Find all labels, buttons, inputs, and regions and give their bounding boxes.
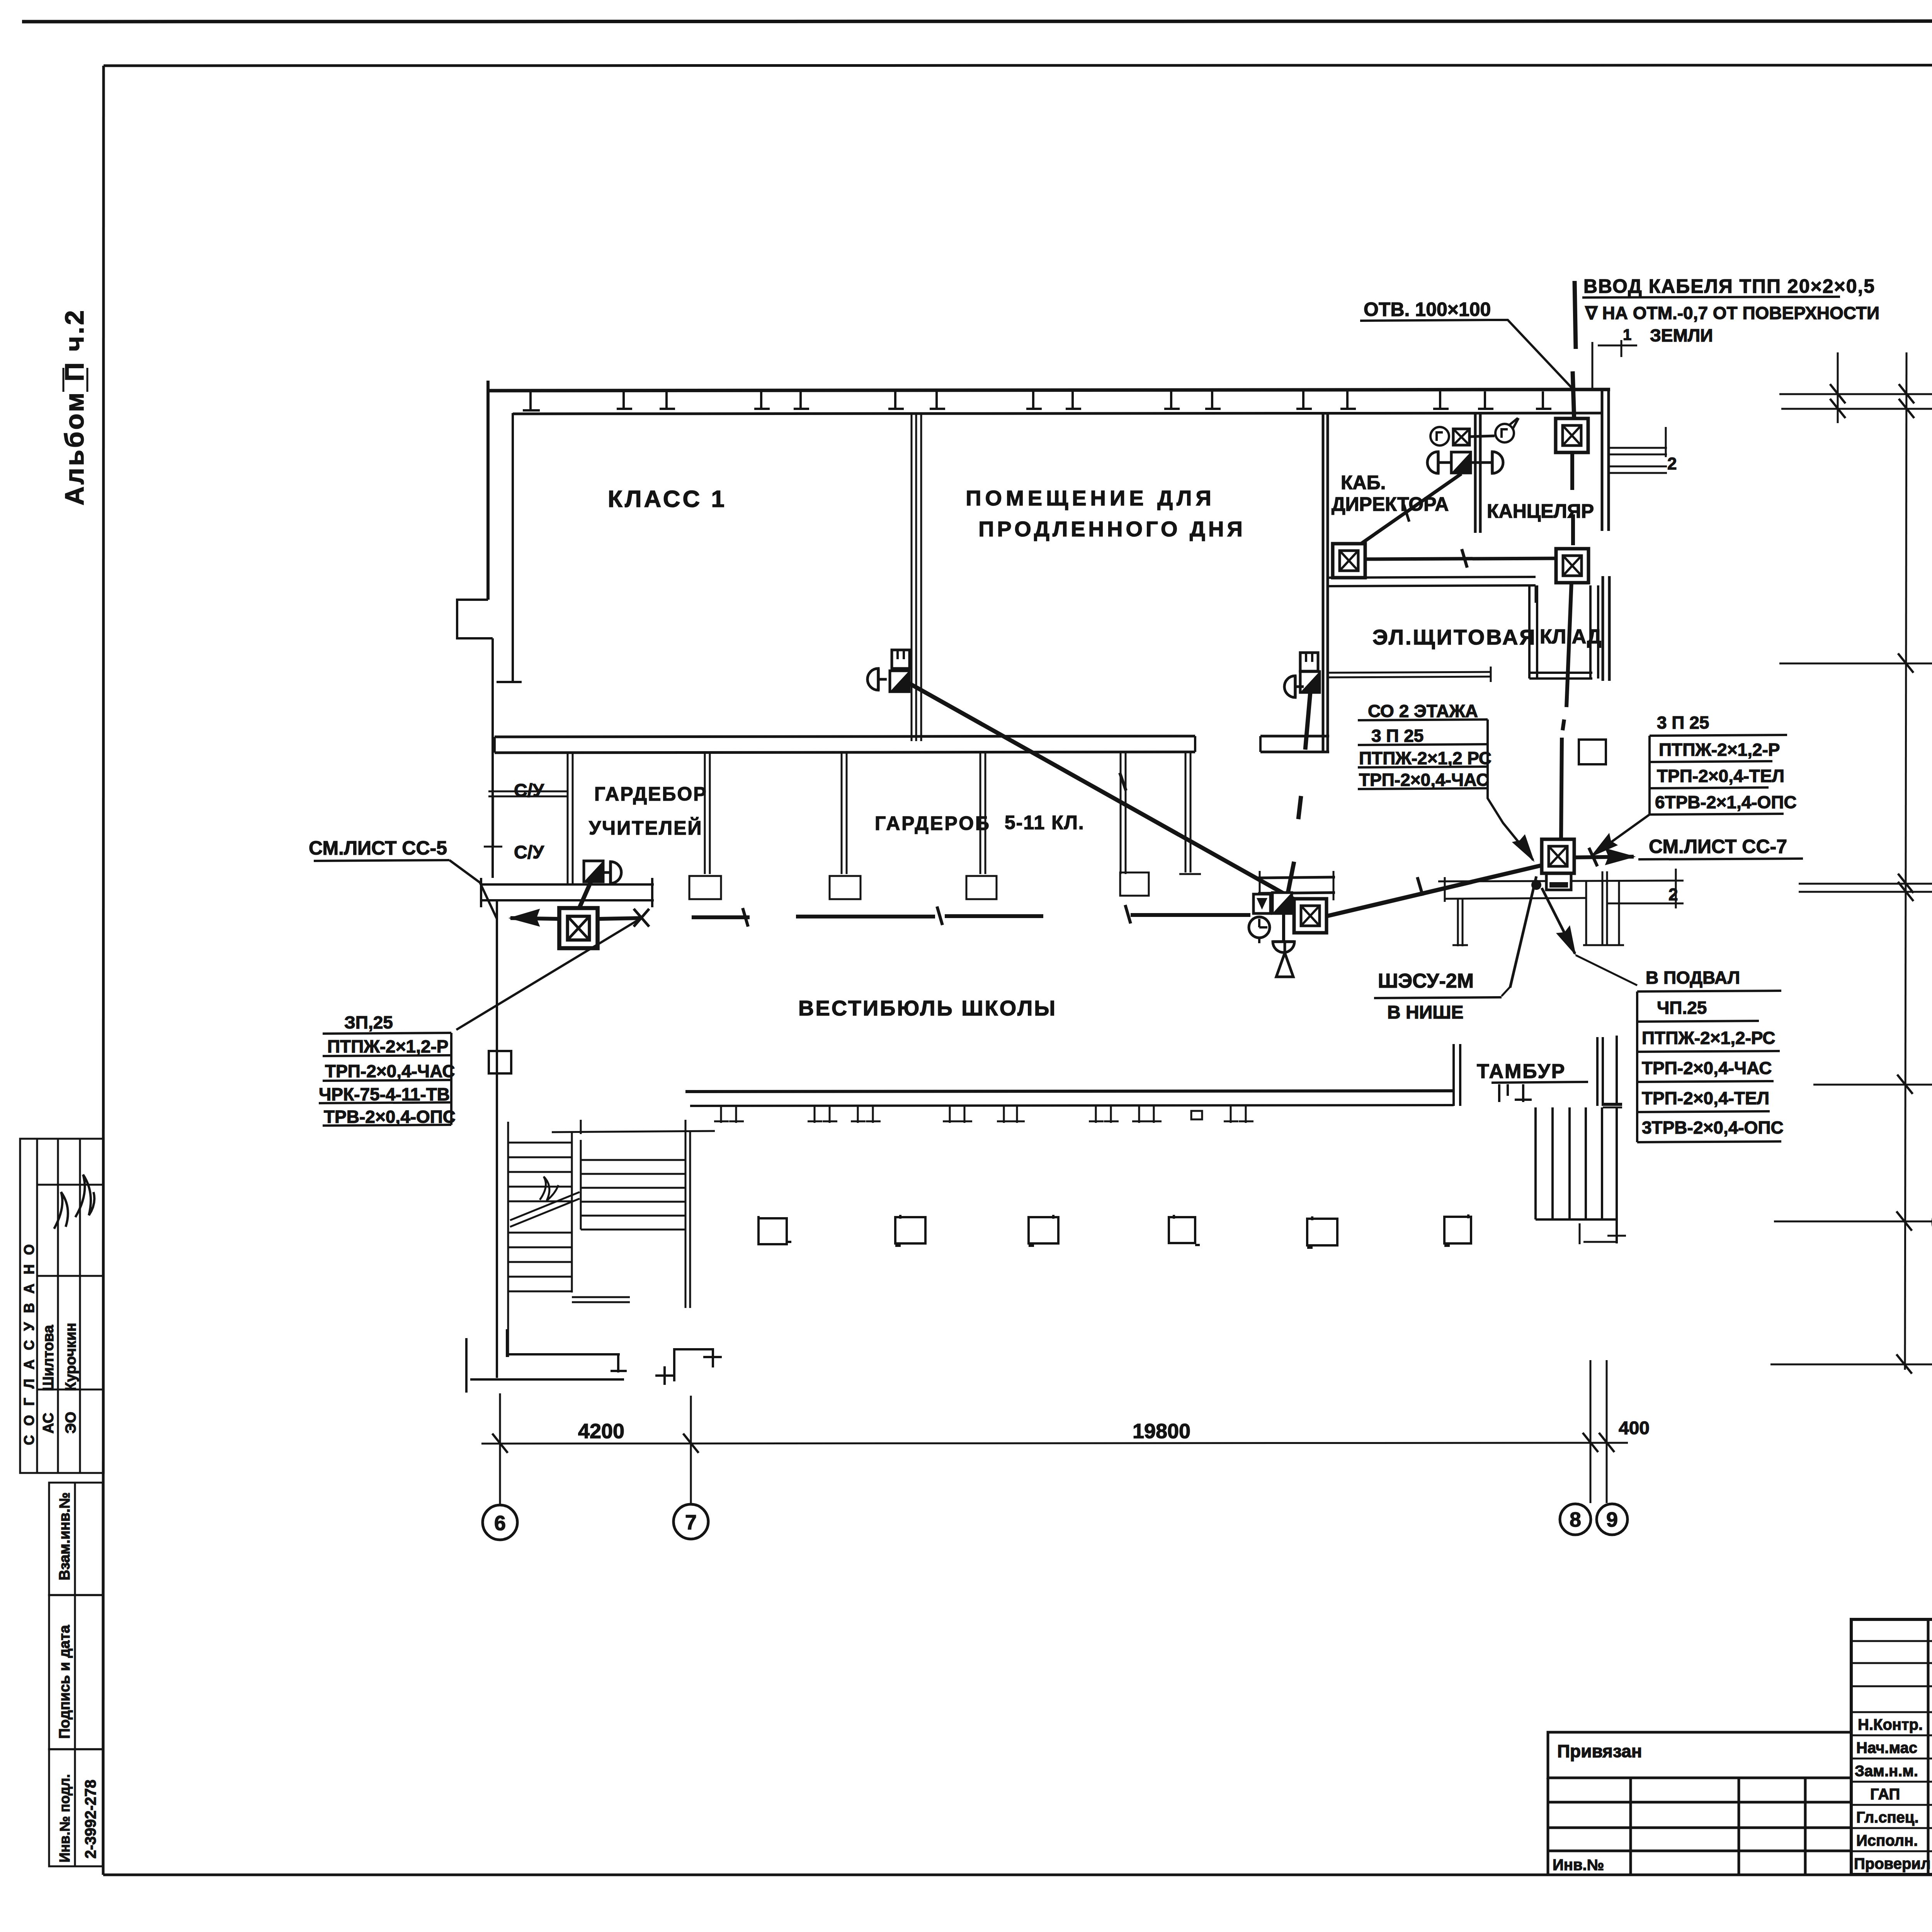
svg-text:ВЕСТИБЮЛЬ ШКОЛЫ: ВЕСТИБЮЛЬ ШКОЛЫ (798, 996, 1057, 1020)
svg-text:6ТРВ-2×1,4-ОПС: 6ТРВ-2×1,4-ОПС (1655, 792, 1797, 812)
svg-text:СМ.ЛИСТ СС-7: СМ.ЛИСТ СС-7 (1649, 836, 1787, 857)
svg-text:Привязан: Привязан (1557, 1741, 1642, 1761)
svg-text:Взам.инв.№: Взам.инв.№ (56, 1492, 73, 1580)
svg-text:ТАМБУР: ТАМБУР (1477, 1060, 1566, 1082)
svg-text:ТРП-2×0,4-ЧАС: ТРП-2×0,4-ЧАС (325, 1061, 455, 1081)
svg-text:Подпись и дата: Подпись и дата (56, 1625, 73, 1739)
svg-text:В НИШЕ: В НИШЕ (1387, 1002, 1463, 1022)
svg-text:КАНЦЕЛЯР: КАНЦЕЛЯР (1487, 500, 1594, 522)
svg-text:Исполн.: Исполн. (1856, 1832, 1918, 1849)
svg-text:ЭО: ЭО (63, 1412, 79, 1434)
svg-text:ТРП-2×0,4-ЧАС: ТРП-2×0,4-ЧАС (1359, 770, 1489, 790)
svg-text:ЗЕМЛИ: ЗЕМЛИ (1650, 325, 1713, 345)
svg-text:6: 6 (494, 1511, 506, 1534)
svg-text:ТРВ-2×0,4-ОПС: ТРВ-2×0,4-ОПС (324, 1107, 456, 1127)
svg-text:19800: 19800 (1133, 1419, 1190, 1442)
svg-text:ЗП,25: ЗП,25 (344, 1012, 393, 1032)
svg-text:8: 8 (1570, 1508, 1581, 1531)
svg-text:КЛ АД: КЛ АД (1540, 625, 1601, 648)
svg-text:4200: 4200 (578, 1419, 624, 1442)
svg-text:ЭЛ.ЩИТОВАЯ: ЭЛ.ЩИТОВАЯ (1372, 625, 1537, 649)
svg-text:ПРОДЛЕННОГО ДНЯ: ПРОДЛЕННОГО ДНЯ (978, 517, 1245, 541)
svg-text:∇ НА ОТМ.-0,7 ОТ ПОВЕРХНОСТИ: ∇ НА ОТМ.-0,7 ОТ ПОВЕРХНОСТИ (1585, 303, 1879, 323)
svg-text:Альбом П ч.2: Альбом П ч.2 (60, 308, 89, 505)
svg-text:УЧИТЕЛЕЙ: УЧИТЕЛЕЙ (589, 817, 702, 839)
svg-text:ОТВ. 100×100: ОТВ. 100×100 (1364, 299, 1491, 320)
svg-text:Проверил: Проверил (1854, 1855, 1930, 1872)
svg-text:Гл.спец.: Гл.спец. (1856, 1809, 1919, 1826)
svg-text:ГАП: ГАП (1870, 1786, 1900, 1803)
svg-text:ТРП-2×0,4-ТЕЛ: ТРП-2×0,4-ТЕЛ (1642, 1088, 1769, 1108)
svg-text:КЛАСС 1: КЛАСС 1 (608, 485, 727, 512)
svg-text:ПТПЖ-2×1,2 РС: ПТПЖ-2×1,2 РС (1359, 748, 1492, 768)
svg-text:3 П 25: 3 П 25 (1657, 713, 1709, 733)
svg-text:ТРП-2×0,4-ТЕЛ: ТРП-2×0,4-ТЕЛ (1657, 766, 1784, 786)
svg-text:ПТПЖ-2×1,2-РС: ПТПЖ-2×1,2-РС (1642, 1028, 1776, 1048)
svg-text:С/У: С/У (514, 780, 544, 801)
svg-text:7: 7 (685, 1510, 697, 1534)
svg-text:400: 400 (1619, 1418, 1650, 1438)
svg-text:ГАРДЕРОБ: ГАРДЕРОБ (875, 813, 991, 834)
svg-text:3ТРВ-2×0,4-ОПС: 3ТРВ-2×0,4-ОПС (1642, 1117, 1784, 1138)
svg-text:В ПОДВАЛ: В ПОДВАЛ (1646, 968, 1740, 988)
svg-text:ВВОД КАБЕЛЯ ТПП 20×2×0,5: ВВОД КАБЕЛЯ ТПП 20×2×0,5 (1583, 276, 1875, 297)
svg-text:Шилтова: Шилтова (40, 1325, 56, 1391)
svg-text:Зам.н.м.: Зам.н.м. (1855, 1762, 1918, 1779)
svg-text:СО 2 ЭТАЖА: СО 2 ЭТАЖА (1368, 701, 1478, 721)
svg-text:Нач.мас: Нач.мас (1856, 1739, 1917, 1756)
svg-text:АС: АС (40, 1413, 56, 1434)
svg-text:ТРП-2×0,4-ЧАС: ТРП-2×0,4-ЧАС (1642, 1058, 1772, 1078)
svg-text:СМ.ЛИСТ СС-5: СМ.ЛИСТ СС-5 (309, 837, 447, 859)
svg-text:С/У: С/У (514, 842, 544, 862)
svg-text:9: 9 (1606, 1508, 1618, 1531)
svg-text:1: 1 (1623, 326, 1631, 343)
svg-text:2: 2 (1668, 885, 1678, 904)
svg-text:ПТПЖ-2×1,2-Р: ПТПЖ-2×1,2-Р (327, 1036, 449, 1056)
svg-text:Н.Контр.: Н.Контр. (1858, 1716, 1923, 1733)
svg-text:2: 2 (1667, 454, 1677, 473)
svg-text:Инв.№ подл.: Инв.№ подл. (57, 1774, 73, 1862)
svg-text:3 П 25: 3 П 25 (1371, 726, 1423, 746)
svg-text:КАБ.: КАБ. (1341, 472, 1386, 493)
svg-text:ЧП.25: ЧП.25 (1657, 998, 1707, 1018)
svg-text:2-3992-278: 2-3992-278 (82, 1779, 99, 1859)
svg-text:Инв.№: Инв.№ (1553, 1856, 1604, 1873)
svg-text:ШЭСУ-2М: ШЭСУ-2М (1378, 969, 1474, 992)
svg-text:ПОМЕЩЕНИЕ ДЛЯ: ПОМЕЩЕНИЕ ДЛЯ (966, 486, 1215, 510)
svg-text:ГАРДЕБОР: ГАРДЕБОР (594, 783, 707, 805)
svg-text:5-11 КЛ.: 5-11 КЛ. (1005, 812, 1085, 833)
svg-text:ЧРК-75-4-11-ТВ: ЧРК-75-4-11-ТВ (319, 1084, 450, 1104)
svg-text:ПТПЖ-2×1,2-Р: ПТПЖ-2×1,2-Р (1659, 740, 1780, 760)
svg-text:Курочкин: Курочкин (63, 1323, 79, 1391)
svg-text:С О Г Л А С У В А Н О: С О Г Л А С У В А Н О (21, 1242, 37, 1445)
svg-text:ДИРЕКТОРА: ДИРЕКТОРА (1332, 493, 1449, 515)
